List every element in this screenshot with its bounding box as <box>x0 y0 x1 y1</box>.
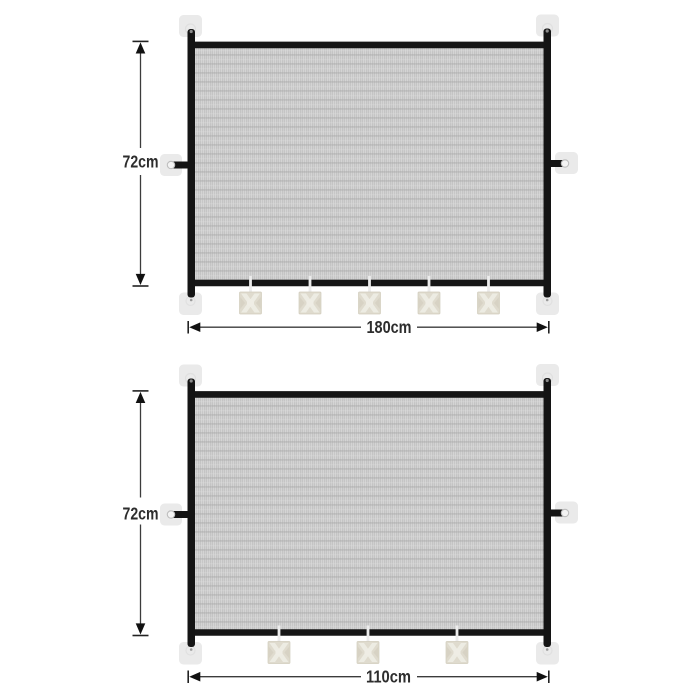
svg-text:110cm: 110cm <box>366 667 411 687</box>
svg-text:72cm: 72cm <box>123 504 159 524</box>
svg-text:180cm: 180cm <box>367 317 412 337</box>
svg-text:72cm: 72cm <box>123 152 159 172</box>
